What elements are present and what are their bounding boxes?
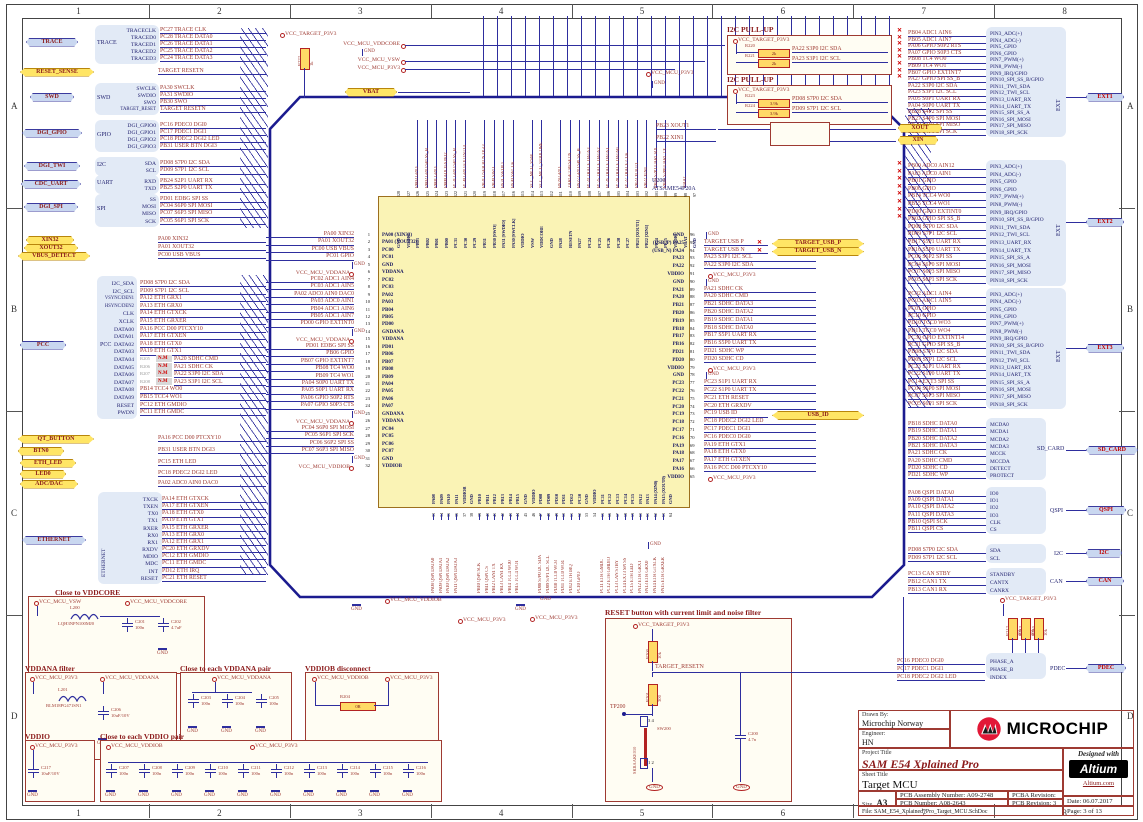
net-label: PC01 GPIO — [908, 306, 986, 313]
capacitor-value: 4.7uF — [171, 625, 182, 630]
capacitor-ref: C216 — [416, 765, 426, 770]
pin-number: 90 — [690, 279, 702, 284]
group-pin-name: MOSI — [112, 204, 156, 210]
resistor-ref: R222 — [297, 50, 302, 66]
mcu-pin-name: VDDIOB — [462, 456, 469, 504]
pin-number: 74 — [690, 404, 702, 409]
mcu-pin-name: PC28 — [616, 200, 623, 248]
group-pin-name: PWDN — [88, 410, 134, 416]
mcu-pin-name: PC06 — [382, 442, 394, 448]
capacitor — [271, 769, 282, 770]
net-label: PB23 XOUT1 — [635, 108, 642, 188]
gnd-label: GND — [204, 793, 215, 799]
capacitor-value: 100n — [201, 701, 210, 706]
pin-number: 81 — [690, 349, 702, 354]
ext-pin-name: PIN4_ADC(-) — [990, 299, 1021, 305]
net-label: PB14 TCC4 WO0 — [140, 386, 266, 393]
date-cell: Date: 06.07.2017 — [1063, 796, 1134, 806]
asm-cell: PCB Assembly Number: A09-2748 — [896, 791, 1008, 799]
pin-number: 116 — [511, 188, 518, 197]
mcu-pin-name: PB15 — [515, 456, 522, 504]
group-pin-name: SS — [112, 197, 156, 203]
capacitor-value: 100n — [251, 771, 260, 776]
net-label: PB04 ADC1 AIN6 — [266, 306, 354, 313]
block-pin-name: SCL — [990, 556, 1000, 562]
net-label: PC25 TRACE DATA2 — [597, 108, 604, 188]
net-label: PC17 PDEC1 DGI1 — [704, 426, 816, 433]
net-label: PD09 S7P1 I2C SCL — [792, 106, 888, 113]
pin-number: 82 — [690, 341, 702, 346]
pin-number: 38 — [469, 508, 476, 517]
net-label: PD08 S7P0 I2C SDA — [792, 96, 888, 103]
wire — [617, 514, 619, 520]
wire — [309, 773, 311, 778]
no-connect-icon: ✕ — [897, 214, 902, 220]
ext-pin-name: PIN16_SPI_MOSI — [990, 117, 1031, 123]
asm-label: PCB Assembly Number: — [900, 792, 965, 799]
net-label: PC05 S6P1 SPI SCK — [266, 432, 354, 439]
resistor-ref: R220 — [745, 43, 759, 48]
net-label: PC05 S6P1 SPI SCK — [908, 401, 986, 408]
capacitor-ref: C210 — [218, 765, 228, 770]
capacitor — [158, 623, 169, 624]
pin-number: 11 — [356, 307, 370, 312]
group-pin-name: TXEN — [116, 504, 158, 510]
pin-number: 53 — [584, 508, 591, 517]
group-pin-name: TRACED3 — [112, 56, 156, 62]
mcu-pin-name: GND — [608, 280, 684, 286]
gnd-label: GND — [187, 729, 198, 735]
group-pin-name: DATA03 — [88, 349, 134, 355]
no-connect-icon: ✕ — [897, 68, 902, 74]
pin-number: 128 — [396, 188, 403, 197]
pin-number: 94 — [690, 248, 702, 253]
pin-number: 79 — [690, 365, 702, 370]
mcu-pin-name: VDDIO — [608, 366, 684, 372]
tag-adc-dac: ADC/DAC — [20, 480, 78, 489]
net-label: PB11 QSPI CS — [485, 521, 492, 593]
gnd-label: GND — [336, 793, 347, 799]
group-pin-name: DATA06 — [88, 372, 134, 378]
net-label: PD21 SDHC WP — [908, 472, 986, 479]
block-pin-name: IO1 — [990, 498, 998, 504]
block-pin-name: MCDA3 — [990, 444, 1009, 450]
capacitor — [106, 769, 117, 770]
wire — [315, 682, 317, 706]
schematic-graphic — [59, 697, 86, 702]
inductor-ref: L200 — [70, 605, 80, 610]
mcu-pin-name: PD00 — [382, 322, 394, 328]
mcu-pin-name: PA21 — [608, 288, 684, 294]
pin-number: 22 — [356, 388, 370, 393]
group-pin-name: TX0 — [116, 511, 158, 517]
power-label: VCC_MCU_VDDIOB — [298, 464, 350, 470]
pin-number: 45 — [523, 508, 530, 517]
mcu-pin-name: PD10 — [554, 456, 561, 504]
tag-reset-sense: RESET_SENSE — [20, 68, 94, 77]
ext-pin-name: PIN9_IRQ/GPIO — [990, 336, 1027, 342]
no-connect-icon: ✕ — [897, 35, 902, 41]
net-label: PB14 TCC4 WO0 — [908, 193, 986, 200]
i2c-pullup-title: I2C PULL-UP — [727, 25, 773, 34]
net-label: PB19 SDHC DATA1 — [704, 317, 816, 324]
capacitor — [98, 711, 109, 712]
block-pin-name: IO3 — [990, 513, 998, 519]
no-connect-icon: ✕ — [897, 184, 902, 190]
net-label: PC03 ADC1 AIN5 — [266, 283, 354, 290]
net-label: PB06 GPIO — [266, 350, 354, 357]
tag-dgi_twi: DGI_TWI — [24, 162, 80, 171]
mcu-pin-name: GND — [692, 200, 699, 248]
net-label: PC24 TRACE DATA3 — [587, 108, 594, 188]
resistor: 2k — [758, 49, 790, 58]
microchip-logo-cell: MICROCHIP — [950, 710, 1134, 748]
mcu-pin-name: PB10 — [477, 456, 484, 504]
wire — [261, 703, 263, 708]
pin-number: 111 — [558, 188, 565, 197]
gnd-label: GND — [105, 793, 116, 799]
ext-pin-name: PIN12_TWI_SCL — [990, 90, 1030, 96]
no-connect-icon: ✕ — [897, 207, 902, 213]
pin-number: 28 — [356, 433, 370, 438]
tag-ext3: EXT3 — [1086, 344, 1124, 353]
capacitor-value: 100n — [350, 771, 359, 776]
group-label-ext3: EXT — [1056, 334, 1064, 362]
mcu-pin-name: PB13 — [500, 456, 507, 504]
switch-pin-numbers: 1 2 — [648, 760, 654, 765]
ext-pin-name: PIN7_PWM(+) — [990, 194, 1024, 200]
nm-label: N.M — [158, 356, 168, 361]
mcu-pin-name: PC21 — [608, 397, 684, 403]
net-label: PA21 SDHC CK — [908, 450, 986, 457]
net-label: PB18 SDHC DATA0 — [908, 421, 986, 428]
ext-pin-name: PIN7_PWM(+) — [990, 321, 1024, 327]
capacitor — [337, 769, 348, 770]
net-label: PC10 GPIO — [577, 521, 584, 593]
vddcore-box — [28, 596, 205, 674]
wire — [602, 514, 604, 520]
net-label: PD01 EDBG SPI SS — [160, 196, 266, 203]
schematic-page: { "zones": {"cols":["1","2","3","4","5",… — [0, 0, 1143, 822]
tag-pcc: PCC — [20, 341, 66, 350]
ext-pin-name: PIN7_PWM(+) — [990, 57, 1024, 63]
group-label-pdec: PDEC — [1050, 666, 1065, 672]
ext-pin-name: PIN16_SPI_MOSI — [990, 387, 1031, 393]
capacitor-ref: C217 — [41, 765, 51, 770]
ext-pin-name: PIN14_UART_TX — [990, 248, 1031, 254]
wire — [405, 45, 725, 46]
net-label: PB03 GPIO — [415, 108, 422, 188]
pin-number: 85 — [690, 318, 702, 323]
mcu-pin-name: RESETN — [568, 200, 575, 248]
mcu-pin-name: PC04 — [382, 427, 394, 433]
net-label: PB10 QSPI SCK — [908, 519, 986, 526]
group-pin-name: RESET — [88, 403, 134, 409]
block-pin-name: IO2 — [990, 505, 998, 511]
group-pin-name: DGI_GPIO0 — [112, 123, 156, 129]
net-label: PB06 GPIO — [908, 186, 986, 193]
wire — [227, 703, 229, 708]
schematic-graphic — [58, 694, 88, 702]
net-label: PD00 GPIO EXTINT0 — [266, 320, 354, 327]
net-label: PA08 QSPI DATA0 — [431, 521, 438, 593]
wire — [304, 68, 306, 98]
no-connect-icon: ✕ — [897, 191, 902, 197]
ext-pin-name: PIN12_TWI_SCL — [990, 358, 1030, 364]
engineer-value: HN — [862, 738, 946, 748]
net-label: TARGET RESETN — [568, 108, 575, 188]
ext-pin-name: PIN3_ADC(+) — [990, 31, 1022, 37]
capacitor-value: 10uF/10V — [41, 771, 60, 776]
group-pin-name: DATA07 — [88, 380, 134, 386]
net-label: PA28 GPIO — [558, 108, 565, 188]
mcu-pin-name: PC18 — [608, 420, 684, 426]
wire — [33, 682, 35, 694]
xosc-component — [770, 122, 830, 146]
pin-number: 16 — [356, 344, 370, 349]
net-label: PC03 ADC1 AIN5 — [908, 298, 986, 305]
net-label: PA16 PCC D00 PTCXY10 — [158, 435, 266, 442]
pin-number: 2 — [356, 239, 370, 244]
pin-number: 77 — [690, 380, 702, 385]
group-label-i2c: I2C — [1054, 551, 1063, 557]
gnd-label: GND — [171, 793, 182, 799]
mcu-pin-name: PA07 — [382, 404, 393, 410]
net-label: PD09 S7P1 I2C SCL — [140, 288, 266, 295]
ext-pin-name: PIN6_GPIO — [990, 187, 1017, 193]
size-cell: Size A3 — [858, 791, 896, 806]
gnd-label: GND — [221, 729, 232, 735]
mcu-pin-name: PB07 — [382, 360, 393, 366]
net-label: PA12 ETH GRX1 — [140, 295, 266, 302]
ext-pin-name: PIN18_SPI_SCK — [990, 278, 1028, 284]
wire — [479, 514, 481, 520]
wire — [652, 629, 654, 641]
net-label: TARGET RESETN — [158, 68, 266, 75]
net-label: PD08 S7P0 I2C SDA — [908, 349, 986, 356]
mcu-pin-name: PB16 — [608, 342, 684, 348]
block-pin-name: MCCDA — [990, 459, 1010, 465]
group-pin-name: SWO — [112, 100, 156, 106]
resistor-ref: R201 — [645, 686, 650, 702]
wire — [1066, 581, 1086, 582]
group-pin-name: TX1 — [116, 518, 158, 524]
pin-number: 31 — [356, 456, 370, 461]
net-label: PC21 ETH RESET — [162, 575, 266, 582]
net-label: PB14 TCC4 WO0 — [508, 521, 515, 593]
pin-number: 122 — [453, 188, 460, 197]
net-label: PB01 GPIO — [434, 108, 441, 188]
net-label: PA16 PCC D00 PTCXY10 — [704, 465, 816, 472]
power-rail-label: VCC_MCU_P3V3 — [255, 743, 298, 749]
net-label: PC30 GPIO EXTINT14 — [908, 335, 986, 342]
net-label: PC18 PDEC2 DGI2 LED — [158, 470, 266, 477]
project-title: SAM E54 Xplained Pro — [862, 757, 1059, 771]
mcu-pin-name: PA15 (XOUT0) — [661, 456, 668, 504]
wire — [563, 514, 565, 520]
net-label: PA15 ETH GRXER — [162, 525, 266, 532]
group-pin-name: RESET — [116, 576, 158, 582]
capacitor-ref: C203 — [201, 695, 211, 700]
wire — [405, 69, 675, 70]
power-rail-label: VCC_MCU_VDDIOB — [111, 743, 163, 749]
mcu-pin-name: PB11 — [485, 456, 492, 504]
block-pin-name: IO0 — [990, 491, 998, 497]
net-label: PA22 S3P0 I2C SDA — [704, 262, 816, 269]
wire — [37, 606, 39, 616]
pin-number: 126 — [415, 188, 422, 197]
group-pin-name: RXDV — [116, 547, 158, 553]
net-label: PC06 S6P2 SPI SS — [908, 254, 986, 261]
gnd-label: GND — [708, 372, 719, 378]
group-label-ext2: EXT — [1056, 208, 1064, 236]
gnd-label: GND — [402, 793, 413, 799]
net-label: PB20 SDHC DATA2 — [908, 436, 986, 443]
wire — [193, 703, 195, 708]
wire — [740, 744, 742, 782]
pin-number: 80 — [690, 357, 702, 362]
no-connect-icon: ✕ — [897, 41, 902, 47]
power-rail-label: VCC_MCU_P3V3 — [535, 615, 578, 621]
pdec-pin-name: PHASE_B — [990, 667, 1013, 673]
wire — [388, 682, 390, 706]
group-pin-name: VSYNC/DEN1 — [88, 296, 134, 302]
net-label: PD08 S7P0 I2C SDA — [908, 547, 986, 554]
ext-pin-name: PIN15_SPI_SS_A — [990, 380, 1030, 386]
pin-number: 102 — [644, 188, 651, 197]
pin-number: 13 — [356, 321, 370, 326]
capacitor-ref: C209 — [185, 765, 195, 770]
capacitor-value: 100n — [416, 771, 425, 776]
wire — [108, 762, 428, 763]
pdec-pin-name: INDEX — [990, 675, 1007, 681]
group-pin-name: RXD — [112, 179, 156, 185]
net-label: PC14 EXT3 SPI SS — [908, 379, 986, 386]
mcu-pin-name: PC23 — [608, 381, 684, 387]
capacitor-ref: C207 — [119, 765, 129, 770]
net-label: PA14 ETH GTXCK — [653, 521, 660, 593]
pin-number: 8 — [356, 284, 370, 289]
mcu-pin-name: PB08 — [382, 367, 393, 373]
mcu-pin-name: PC22 — [608, 389, 684, 395]
net-label: PB20 SDHC DATA2 — [704, 309, 816, 316]
wire — [127, 627, 129, 632]
net-label: PD12 ETH IRQ — [569, 521, 576, 593]
net-label: PA01 XOUT32 — [266, 238, 354, 245]
block-pin-name: CLK — [990, 520, 1001, 526]
pcb-rev-cell: PCB Revision: 3 — [1008, 799, 1063, 806]
sheet-title: Target MCU — [862, 779, 1059, 791]
net-label: PA18 ETH GTX0 — [140, 341, 266, 348]
mcu-pin-name: PA11 — [454, 456, 461, 504]
capacitor — [256, 699, 267, 700]
ext-pin-name: PIN8_PWM(-) — [990, 329, 1022, 335]
switch-part: SKRAAKE010 — [632, 716, 640, 774]
mcu-pin-name: PD09 — [546, 456, 553, 504]
mcu-pin-name: PC16 — [608, 436, 684, 442]
pin-number: 127 — [406, 188, 413, 197]
wire — [315, 705, 340, 706]
net-label: PD08 S7P0 I2C SDA — [140, 280, 266, 287]
net-label: PA22 S3P0 I2C SDA — [792, 46, 888, 53]
pin-number: 109 — [577, 188, 584, 197]
drawn-by-cell: Drawn By: Microchip Norway — [858, 710, 950, 729]
mcu-pin-name: PA14 (XIN0) — [653, 456, 660, 504]
pcba-rev-cell: PCBA Revision: 5 — [1008, 791, 1063, 799]
mcu-pin-name: PA31 [SWDIO] — [501, 200, 508, 248]
ext-pin-name: PIN10_SPI_SS_B/GPIO — [990, 343, 1044, 349]
ext-pin-name: PIN13_UART_RX — [990, 97, 1031, 103]
mcu-pin-name: PD21 — [608, 350, 684, 356]
ext-pin-name: PIN12_TWI_SCL — [990, 232, 1030, 238]
altium-site: Altium.com — [1067, 780, 1130, 787]
net-label: PC07 S6P3 SPI MISO — [266, 447, 354, 454]
net-label: PA03 ADC0 AIN1 — [266, 298, 354, 305]
net-label: PD09 S7P1 I2C SCL — [908, 231, 986, 238]
net-label: PC02 ADC1 AIN4 — [908, 291, 986, 298]
no-connect-icon: ✕ — [897, 28, 902, 34]
wire — [625, 514, 627, 520]
net-label: PA13 ETH GRX0 — [140, 303, 266, 310]
no-connect-icon: ✕ — [897, 74, 902, 80]
resistor: 3.9k — [758, 99, 790, 108]
net-label: PB31 USER BTN DGI3 — [160, 143, 266, 150]
mcu-pin-name: PB12 — [492, 456, 499, 504]
mcu-pin-name: PC26 — [606, 200, 613, 248]
mcu-pin-name: VDDIO — [520, 200, 527, 248]
power-rail-label: VCC_MCU_VDDCORE — [130, 599, 187, 605]
wire — [502, 514, 504, 520]
net-label: VCC_MCU_VDDCORE — [539, 108, 546, 188]
vcc-target-label: VCC_TARGET_P3V3 — [285, 31, 336, 37]
mcu-pin-name: PC10 — [577, 456, 584, 504]
mcu-pin-name: VDDANA — [382, 337, 404, 343]
group-pin-name: TRACECLK — [112, 28, 156, 34]
testpoint-label: TP200 — [610, 704, 625, 710]
mcu-pin-name: PA28 — [558, 200, 565, 248]
tag-pdec: PDEC — [1086, 664, 1126, 673]
mcu-pin-name: PC07 — [382, 449, 394, 455]
net-label: PC12 ETH GMDIO — [162, 553, 266, 560]
mcu-pin-name: VSW — [530, 200, 537, 248]
mcu-pin-name: VDDIO — [531, 456, 538, 504]
pin-number: 98 — [683, 188, 690, 197]
capacitor-value: 100n — [119, 771, 128, 776]
wire — [405, 61, 705, 62]
pin-number: 17 — [356, 351, 370, 356]
pin-number: 67 — [690, 458, 702, 463]
ext-pin-name: PIN8_PWM(-) — [990, 64, 1022, 70]
group-pin-name: INT — [116, 569, 158, 575]
net-label: PB23 XOUT1 — [656, 123, 716, 130]
wire — [903, 597, 905, 673]
net-label: PB24 S2P1 UART RX — [654, 108, 661, 188]
vcc-mcu-p3v3-label: VCC_MCU_P3V3 — [651, 70, 694, 76]
wire — [830, 129, 896, 130]
wire — [517, 514, 519, 520]
capacitor — [28, 769, 39, 770]
mcu-pin-name: PA23 — [608, 256, 684, 262]
mcu-pin-name: PB19 — [608, 319, 684, 325]
pin-number: 1 — [356, 232, 370, 237]
pin-number: 18 — [356, 359, 370, 364]
mcu-pin-name: PA12 — [638, 456, 645, 504]
net-label: PA23 S3P1 I2C SCL — [174, 379, 266, 386]
block-pin-name: CANRX — [990, 588, 1009, 594]
pin-number: 112 — [549, 188, 556, 197]
net-label: PC23 S1P1 UART RX — [704, 379, 816, 386]
net-label: PB05 ADC1 AIN7 — [266, 313, 354, 320]
